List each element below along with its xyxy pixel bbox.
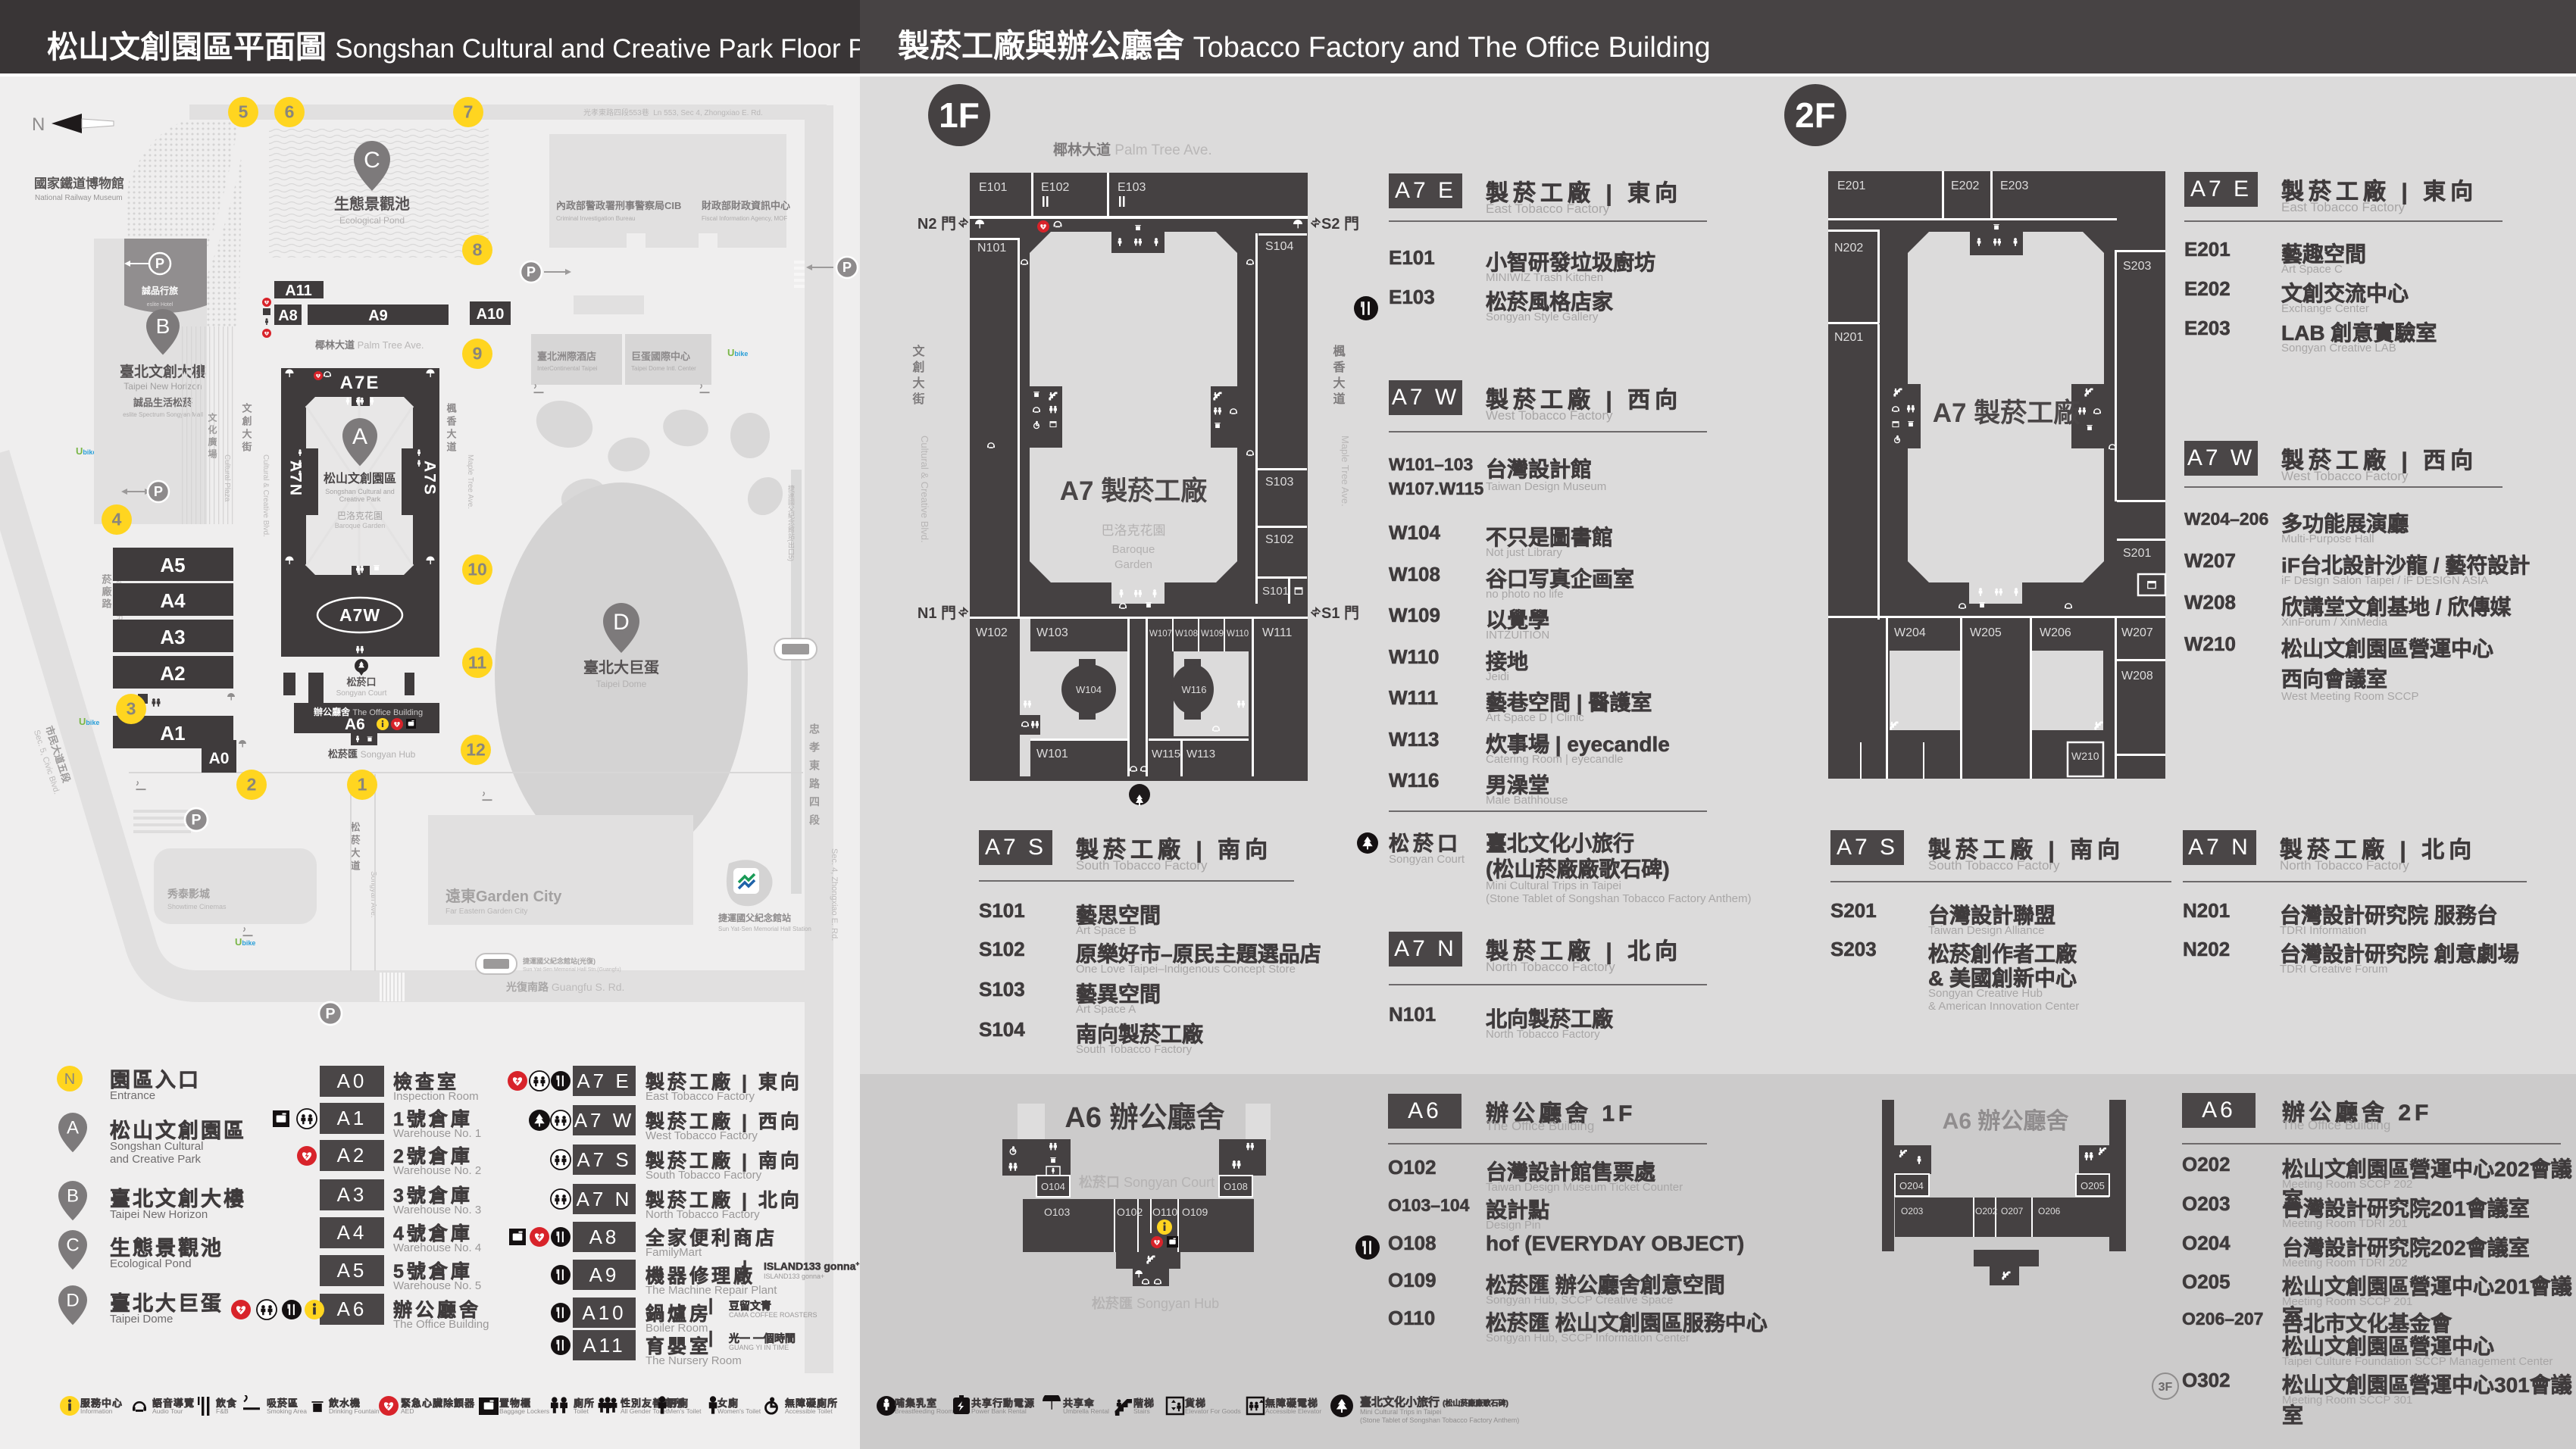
svg-text:遠東Garden City: 遠東Garden City [445, 888, 562, 905]
svg-text:光復南路 Guangfu S. Rd.: 光復南路 Guangfu S. Rd. [505, 981, 624, 993]
svg-text:O205: O205 [2080, 1180, 2105, 1191]
svg-text:N201: N201 [1834, 331, 1863, 344]
svg-text:Sun Yat-Sen Memorial Hall Stat: Sun Yat-Sen Memorial Hall Station [718, 926, 811, 932]
svg-text:S103: S103 [1265, 476, 1293, 489]
svg-text:Far Eastern Garden City: Far Eastern Garden City [445, 907, 527, 916]
svg-text:P: P [843, 260, 852, 275]
svg-text:Songyan Court: Songyan Court [336, 689, 387, 698]
svg-text:1: 1 [358, 775, 367, 795]
svg-text:文創大街: 文創大街 [241, 402, 253, 454]
svg-text:N: N [32, 114, 45, 135]
svg-text:Ecological Pond: Ecological Pond [339, 215, 405, 226]
svg-text:C: C [364, 148, 380, 173]
svg-text:Baroque: Baroque [1112, 543, 1155, 556]
svg-text:S102: S102 [1265, 533, 1293, 546]
svg-text:A7E: A7E [340, 373, 380, 393]
svg-text:B: B [67, 1186, 79, 1207]
svg-text:E103: E103 [1118, 181, 1146, 194]
svg-text:A5: A5 [160, 554, 185, 576]
svg-text:生態景觀池: 生態景觀池 [334, 195, 410, 213]
svg-text:O110: O110 [1152, 1206, 1177, 1218]
svg-text:巨蛋國際中心: 巨蛋國際中心 [631, 351, 690, 362]
svg-text:S101: S101 [1262, 585, 1289, 598]
svg-text:文化廣場: 文化廣場 [207, 412, 217, 461]
svg-text:A3: A3 [160, 626, 185, 648]
svg-text:W205: W205 [1970, 626, 2002, 639]
svg-text:3F: 3F [2159, 1381, 2173, 1394]
svg-text:O102: O102 [1117, 1206, 1143, 1218]
svg-text:9: 9 [473, 344, 483, 364]
svg-text:W107: W107 [1149, 629, 1172, 639]
svg-text:A11: A11 [285, 283, 312, 299]
svg-text:P: P [325, 1005, 335, 1022]
svg-text:W207: W207 [2121, 626, 2153, 639]
svg-text:B: B [156, 314, 170, 338]
svg-text:S203: S203 [2123, 260, 2151, 273]
svg-text:O108: O108 [1224, 1181, 1248, 1192]
svg-text:菸廠路: 菸廠路 [101, 573, 112, 611]
svg-text:Songyan Ave.: Songyan Ave. [369, 871, 377, 918]
svg-text:O204: O204 [1899, 1180, 1924, 1191]
svg-text:巴洛克花園: 巴洛克花園 [337, 510, 383, 521]
svg-text:W108: W108 [1175, 629, 1198, 639]
svg-text:光孝東路四段553巷 Ln 553, Sec 4, Zho: 光孝東路四段553巷 Ln 553, Sec 4, Zhongxiao E. R… [583, 108, 763, 117]
svg-text:A7N: A7N [287, 461, 305, 497]
svg-text:Maple Tree Ave.: Maple Tree Ave. [466, 454, 474, 509]
svg-text:臺北大巨蛋: 臺北大巨蛋 [583, 659, 659, 676]
svg-text:1F: 1F [939, 95, 980, 135]
svg-text:A7S: A7S [421, 461, 439, 496]
svg-text:3: 3 [127, 699, 136, 719]
svg-text:Sun Yat-Sen Memorial Hall Stn.: Sun Yat-Sen Memorial Hall Stn.(Guangfu) [523, 967, 621, 973]
svg-text:P: P [527, 264, 536, 279]
svg-text:捷運國父紀念館站(光復): 捷運國父紀念館站(光復) [523, 957, 596, 965]
svg-text:Baroque Garden: Baroque Garden [335, 522, 386, 529]
svg-text:eslite Hotel: eslite Hotel [147, 302, 174, 308]
svg-text:A6: A6 [345, 716, 365, 733]
svg-text:11: 11 [468, 653, 487, 673]
svg-text:N1 門: N1 門 [918, 604, 956, 622]
svg-text:S1 門: S1 門 [1321, 604, 1359, 622]
svg-text:A6 辦公廳舍: A6 辦公廳舍 [1064, 1102, 1224, 1134]
svg-text:Taipei Dome Intl. Center: Taipei Dome Intl. Center [631, 365, 696, 372]
svg-text:W113: W113 [1186, 748, 1215, 760]
svg-text:A6 辦公廳舍: A6 辦公廳舍 [1943, 1108, 2069, 1134]
svg-text:臺北洲際酒店: 臺北洲際酒店 [537, 351, 596, 362]
svg-text:W102: W102 [976, 626, 1008, 639]
svg-text:O203: O203 [1901, 1206, 1924, 1216]
svg-text:6: 6 [285, 102, 295, 122]
svg-text:忠孝東路四段: 忠孝東路四段 [808, 723, 821, 832]
svg-text:S104: S104 [1265, 240, 1293, 253]
svg-text:O207: O207 [2001, 1206, 2024, 1216]
svg-text:P: P [154, 484, 163, 499]
svg-text:D: D [66, 1291, 79, 1311]
svg-text:N2 門: N2 門 [918, 215, 956, 233]
svg-text:楓香大道: 楓香大道 [1331, 344, 1346, 408]
svg-text:Fiscal Information Agency, MOF: Fiscal Information Agency, MOF [702, 215, 787, 222]
svg-text:松山文創園區: 松山文創園區 [324, 471, 396, 486]
svg-text:P: P [191, 811, 201, 828]
svg-text:12: 12 [466, 740, 486, 760]
svg-text:N101: N101 [977, 242, 1006, 255]
svg-text:Ubike: Ubike [76, 445, 96, 457]
svg-text:N: N [64, 1071, 75, 1088]
svg-text:W208: W208 [2121, 670, 2153, 682]
svg-text:松菸匯 Songyan Hub: 松菸匯 Songyan Hub [328, 748, 416, 760]
svg-text:捷運國父紀念館站(出口5): 捷運國父紀念館站(出口5) [787, 484, 795, 561]
svg-text:A8: A8 [278, 308, 298, 324]
svg-text:A7 製菸工廠: A7 製菸工廠 [1933, 398, 2080, 428]
svg-text:5: 5 [239, 102, 249, 122]
svg-text:辦公廳舍 The Office Building: 辦公廳舍 The Office Building [314, 706, 423, 717]
svg-text:捷運國父紀念館站: 捷運國父紀念館站 [718, 912, 791, 923]
svg-text:S2 門: S2 門 [1321, 215, 1359, 233]
svg-text:2: 2 [247, 775, 257, 795]
svg-text:D: D [613, 610, 630, 635]
svg-text:P: P [155, 256, 164, 271]
svg-text:內政部警政署刑事警察局CIB: 內政部警政署刑事警察局CIB [556, 200, 681, 211]
svg-text:秀泰影城: 秀泰影城 [167, 888, 210, 900]
svg-text:Garden: Garden [1114, 558, 1152, 571]
svg-text:W116: W116 [1182, 684, 1207, 695]
svg-text:椰林大道 Palm Tree Ave.: 椰林大道 Palm Tree Ave. [315, 339, 424, 351]
svg-text:W210: W210 [2071, 750, 2099, 762]
svg-text:楓香大道: 楓香大道 [445, 402, 458, 454]
svg-text:A: A [352, 424, 367, 449]
svg-text:W110: W110 [1227, 629, 1249, 639]
svg-text:O109: O109 [1182, 1206, 1208, 1218]
svg-text:W109: W109 [1201, 629, 1224, 639]
svg-text:8: 8 [473, 240, 483, 260]
svg-text:O103: O103 [1044, 1206, 1070, 1218]
svg-text:松菸口: 松菸口 [346, 676, 376, 688]
svg-text:財政部財政資訊中心: 財政部財政資訊中心 [701, 200, 790, 211]
svg-text:Songshan Cultural and: Songshan Cultural and [325, 488, 395, 495]
svg-text:A0: A0 [209, 750, 230, 767]
svg-text:松菸匯 Songyan Hub: 松菸匯 Songyan Hub [1092, 1295, 1219, 1311]
svg-text:10: 10 [467, 560, 487, 579]
svg-text:Cultural & Creative Blvd.: Cultural & Creative Blvd. [919, 436, 930, 543]
svg-text:W104: W104 [1076, 684, 1102, 695]
svg-text:誠品行旅: 誠品行旅 [142, 285, 178, 296]
svg-text:文創大街: 文創大街 [911, 344, 926, 408]
svg-text:C: C [66, 1235, 79, 1256]
svg-text:Ubike: Ubike [727, 347, 748, 358]
svg-text:4: 4 [112, 510, 122, 529]
svg-text:W204: W204 [1894, 626, 1926, 639]
svg-text:E101: E101 [979, 181, 1007, 194]
svg-text:E202: E202 [1951, 180, 1979, 192]
svg-text:2F: 2F [1795, 95, 1836, 135]
svg-text:A7 製菸工廠: A7 製菸工廠 [1060, 476, 1207, 506]
svg-text:A2: A2 [160, 662, 185, 685]
svg-text:Maple Tree Ave.: Maple Tree Ave. [1340, 436, 1351, 507]
svg-text:E201: E201 [1837, 180, 1865, 192]
svg-text:Cultural Plaza: Cultural Plaza [223, 454, 231, 502]
svg-text:E102: E102 [1041, 181, 1069, 194]
svg-text:Sec. 4, Zhongxiao E. Rd.: Sec. 4, Zhongxiao E. Rd. [830, 848, 839, 941]
svg-text:A9: A9 [368, 308, 388, 324]
svg-text:O104: O104 [1041, 1181, 1065, 1192]
svg-text:O202: O202 [1975, 1206, 1998, 1216]
svg-text:A1: A1 [160, 722, 185, 745]
svg-text:松菸口 Songyan Court: 松菸口 Songyan Court [1079, 1174, 1215, 1190]
svg-text:A4: A4 [160, 589, 186, 612]
svg-text:W101: W101 [1036, 748, 1068, 760]
svg-text:Taipei Dome: Taipei Dome [596, 679, 647, 689]
svg-text:S201: S201 [2123, 547, 2151, 560]
svg-text:W103: W103 [1036, 626, 1068, 639]
svg-text:巴洛克花園: 巴洛克花園 [1102, 523, 1166, 538]
svg-text:國家鐵道博物館: 國家鐵道博物館 [34, 176, 124, 191]
svg-text:A: A [67, 1118, 79, 1138]
svg-text:N202: N202 [1834, 242, 1863, 255]
svg-text:Creative Park: Creative Park [339, 495, 381, 503]
svg-text:W206: W206 [2040, 626, 2071, 639]
svg-text:7: 7 [464, 102, 474, 122]
svg-text:Criminal Investigation Bureau: Criminal Investigation Bureau [556, 215, 636, 222]
svg-text:InterContinental Taipei: InterContinental Taipei [537, 365, 598, 372]
svg-text:Ubike: Ubike [235, 936, 255, 948]
svg-text:A7W: A7W [339, 605, 380, 625]
svg-text:A10: A10 [477, 306, 505, 323]
svg-text:O206: O206 [2038, 1206, 2061, 1216]
svg-text:W111: W111 [1262, 626, 1293, 639]
svg-text:W115: W115 [1152, 748, 1180, 760]
svg-text:椰林大道 Palm Tree Ave.: 椰林大道 Palm Tree Ave. [1053, 141, 1212, 158]
svg-text:E203: E203 [2000, 180, 2028, 192]
svg-text:Cultural & Creative Blvd.: Cultural & Creative Blvd. [261, 454, 270, 537]
svg-text:National Railway Museum: National Railway Museum [35, 194, 123, 202]
svg-text:Showtime Cinemas: Showtime Cinemas [167, 903, 227, 910]
